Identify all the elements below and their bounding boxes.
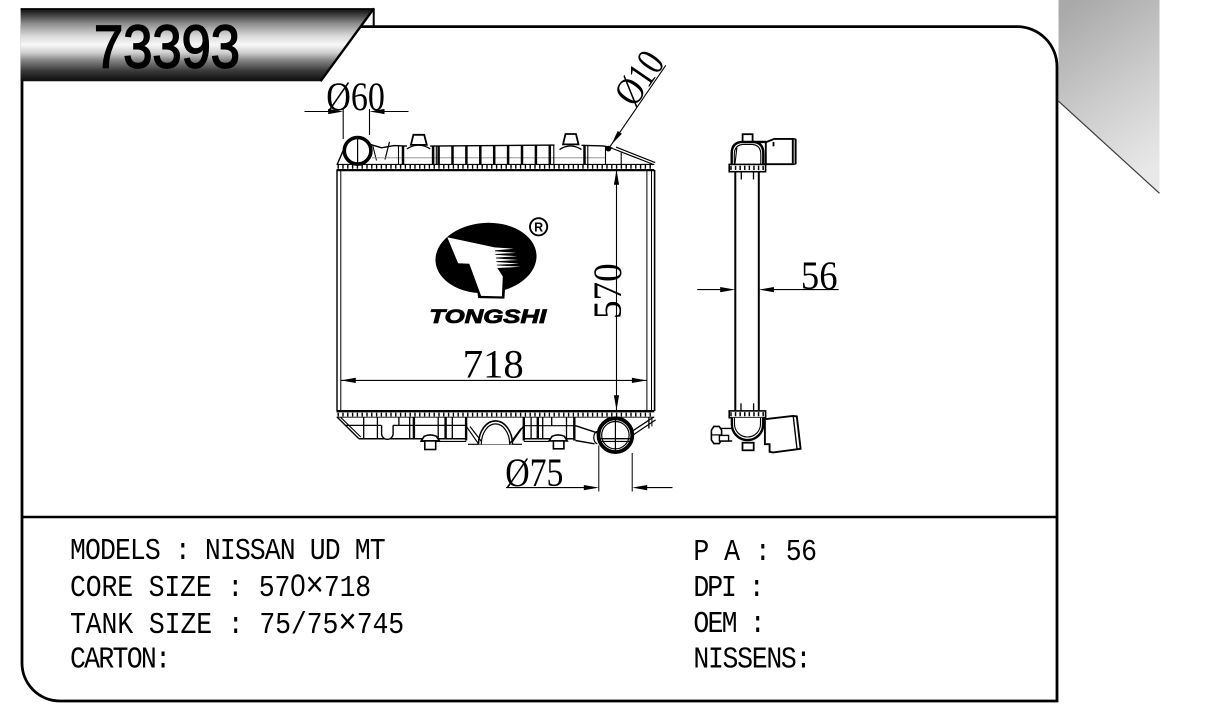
svg-text:56: 56	[801, 253, 838, 298]
svg-text:TONGSHI: TONGSHI	[429, 307, 547, 328]
svg-text:NISSENS:: NISSENS:	[693, 642, 811, 677]
svg-text:DPI :: DPI :	[693, 570, 764, 605]
svg-text:TANK SIZE : 75/75×745: TANK SIZE : 75/75×745	[70, 604, 404, 644]
svg-text:R: R	[534, 220, 543, 234]
svg-text:P A : 56: P A : 56	[693, 534, 817, 569]
svg-text:MODELS : NISSAN UD MT: MODELS : NISSAN UD MT	[70, 533, 386, 568]
svg-text:OEM :: OEM :	[693, 606, 765, 641]
svg-text:CARTON:: CARTON:	[70, 642, 171, 677]
svg-text:718: 718	[463, 341, 524, 386]
svg-text:73393: 73393	[94, 14, 240, 81]
svg-text:570: 570	[585, 263, 630, 319]
svg-text:CORE SIZE : 570×718: CORE SIZE : 570×718	[70, 567, 371, 607]
svg-text:Ø75: Ø75	[505, 450, 563, 495]
